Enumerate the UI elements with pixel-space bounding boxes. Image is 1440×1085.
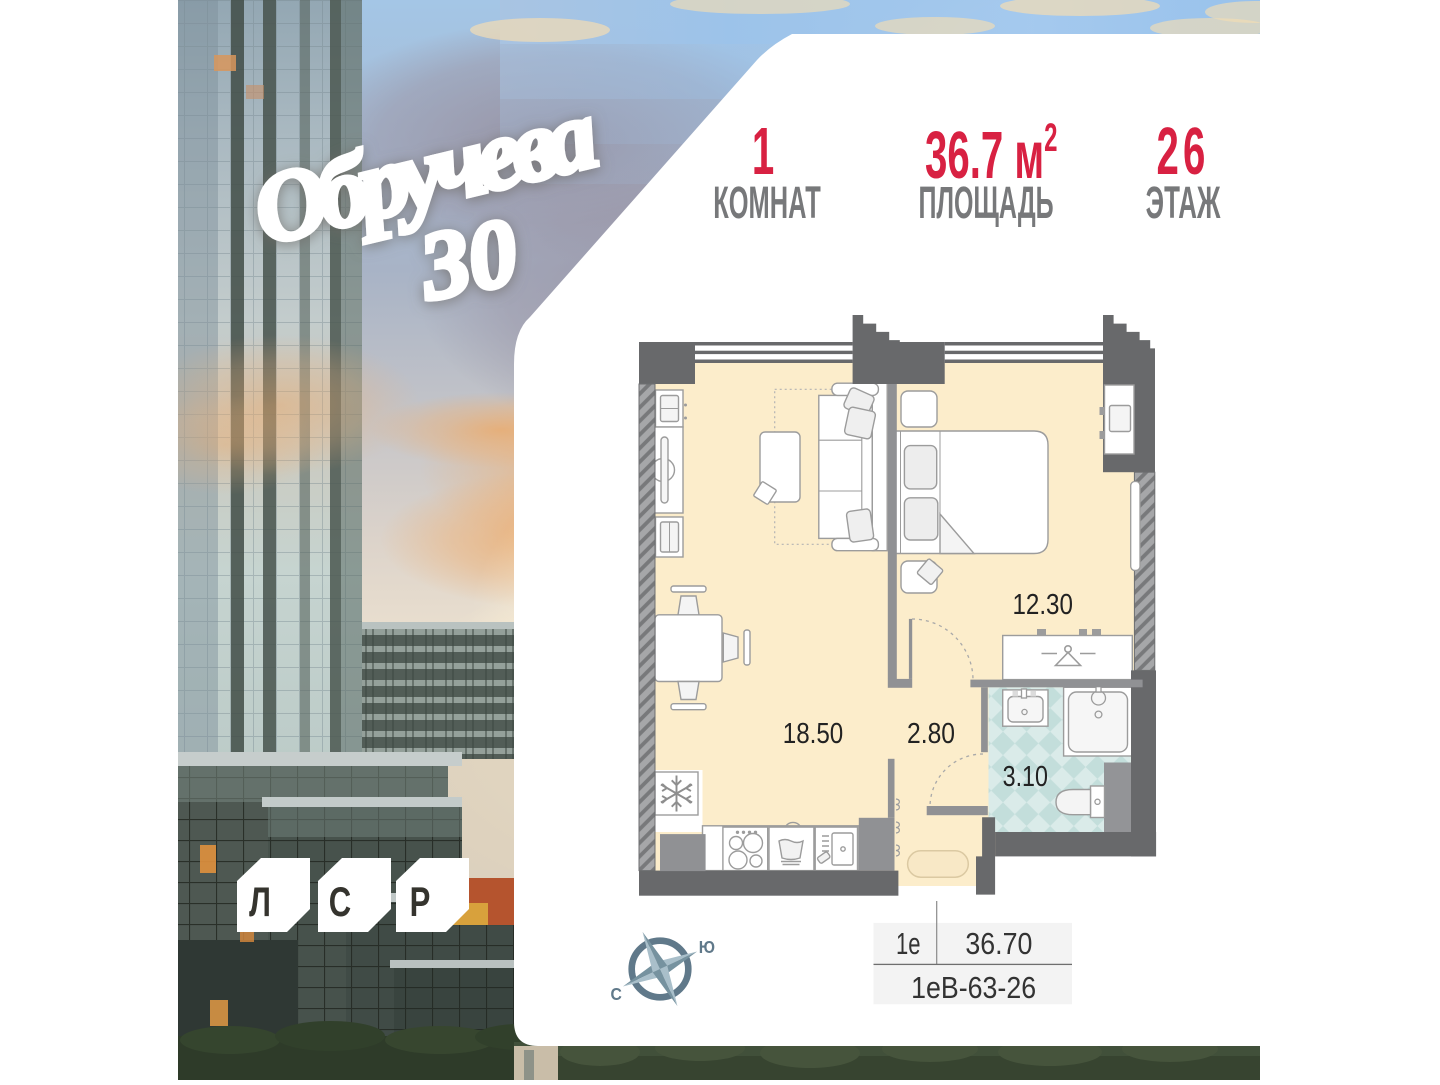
- svg-text:12.30: 12.30: [1012, 589, 1073, 621]
- svg-text:2.80: 2.80: [907, 718, 955, 750]
- svg-text:1еВ-63-26: 1еВ-63-26: [911, 970, 1036, 1005]
- svg-text:3.10: 3.10: [1003, 761, 1048, 793]
- svg-text:С: С: [611, 984, 622, 1004]
- svg-text:36.70: 36.70: [965, 926, 1032, 961]
- svg-text:18.50: 18.50: [783, 718, 844, 750]
- svg-text:1е: 1е: [896, 926, 921, 961]
- svg-text:Ю: Ю: [699, 937, 715, 957]
